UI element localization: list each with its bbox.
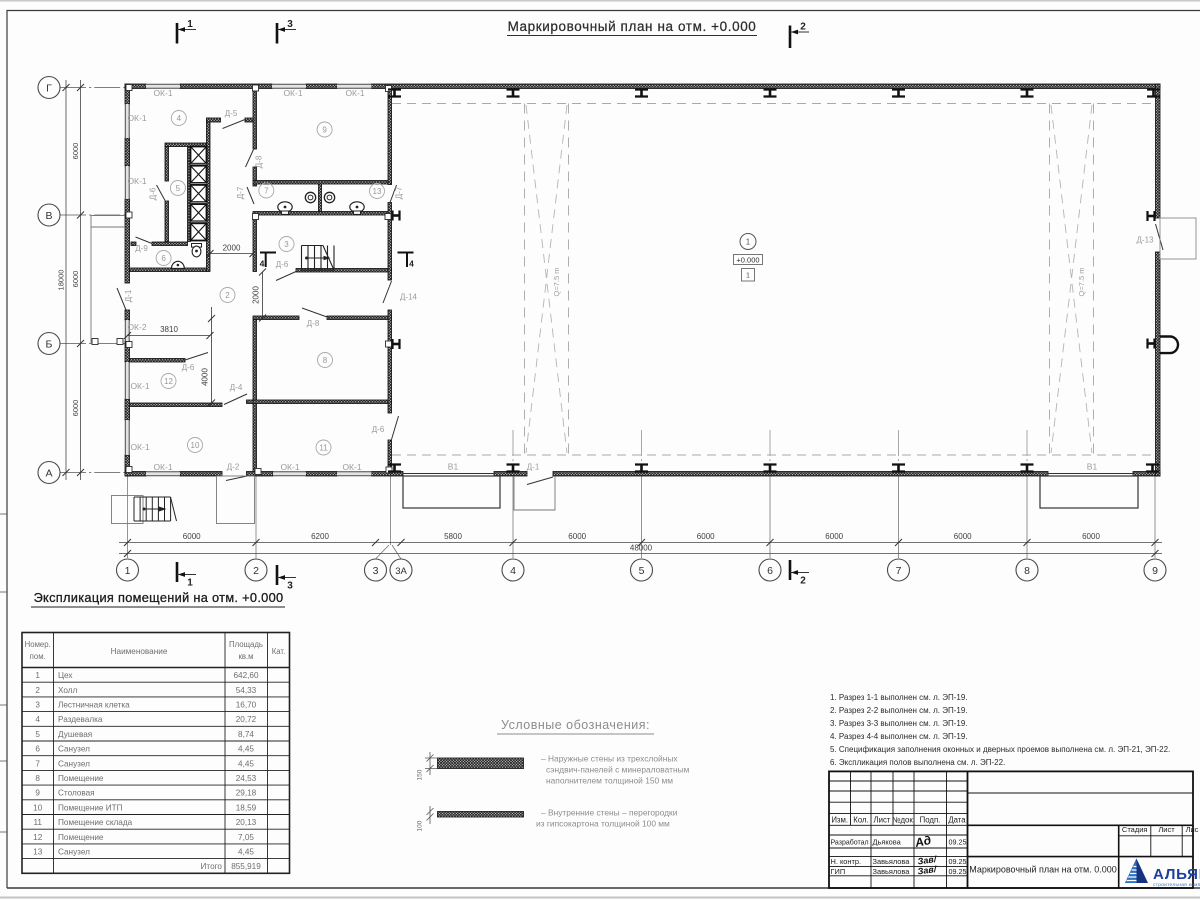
svg-text:6000: 6000	[183, 532, 201, 541]
svg-text:2: 2	[35, 686, 40, 695]
svg-text:4: 4	[35, 715, 40, 724]
svg-text:Раздевалка: Раздевалка	[58, 715, 103, 724]
svg-text:В1: В1	[448, 462, 459, 472]
svg-text:1: 1	[187, 19, 193, 30]
svg-text:2000: 2000	[252, 286, 261, 304]
svg-text:Стадия: Стадия	[1122, 825, 1148, 834]
svg-text:09.25: 09.25	[949, 857, 967, 866]
svg-text:7,05: 7,05	[238, 833, 254, 842]
svg-text:Санузел: Санузел	[58, 759, 90, 768]
svg-text:ОК-1: ОК-1	[342, 462, 361, 472]
svg-text:6000: 6000	[697, 532, 715, 541]
svg-text:2000: 2000	[223, 244, 241, 253]
svg-text:Кат.: Кат.	[272, 647, 286, 656]
svg-text:09.25: 09.25	[949, 838, 967, 847]
svg-text:4: 4	[409, 259, 414, 269]
svg-text:– Наружные стены из трехслойны: – Наружные стены из трехслойных	[541, 754, 678, 764]
svg-text:2: 2	[253, 565, 259, 577]
svg-text:10: 10	[33, 803, 43, 812]
svg-text:Разработал: Разработал	[831, 839, 869, 847]
svg-text:20,72: 20,72	[236, 715, 257, 724]
svg-text:3: 3	[373, 565, 379, 577]
svg-text:Г: Г	[46, 83, 52, 95]
svg-text:6000: 6000	[1082, 532, 1100, 541]
svg-text:Д-5: Д-5	[225, 109, 238, 118]
svg-text:3: 3	[287, 581, 293, 592]
svg-text:Санузел: Санузел	[58, 745, 90, 754]
svg-text:Д-6: Д-6	[276, 260, 289, 269]
svg-text:3: 3	[35, 701, 40, 710]
svg-text:8: 8	[1024, 565, 1030, 577]
svg-text:Маркировочный план на отм. 0.0: Маркировочный план на отм. 0.000	[969, 865, 1116, 875]
svg-text:Д-1: Д-1	[124, 289, 133, 302]
svg-text:855,919: 855,919	[231, 862, 261, 871]
svg-text:Дата: Дата	[948, 816, 966, 825]
svg-text:1: 1	[187, 578, 193, 589]
svg-text:Лис: Лис	[1186, 825, 1199, 834]
svg-text:1: 1	[125, 565, 131, 577]
svg-text:4: 4	[177, 114, 182, 123]
svg-text:ОК-1: ОК-1	[130, 381, 149, 391]
svg-text:Завьялова: Завьялова	[873, 867, 911, 876]
svg-text:ГИП: ГИП	[831, 867, 846, 876]
svg-text:Цех: Цех	[58, 671, 73, 680]
svg-text:3: 3	[287, 19, 293, 30]
svg-text:12: 12	[164, 377, 173, 386]
svg-text:Площадь: Площадь	[229, 640, 263, 649]
svg-text:4: 4	[510, 565, 516, 577]
svg-text:2: 2	[225, 291, 230, 300]
svg-text:наполнителем толщиной 150 мм: наполнителем толщиной 150 мм	[546, 776, 673, 786]
svg-text:4,45: 4,45	[238, 759, 254, 768]
svg-text:16,70: 16,70	[236, 701, 257, 710]
svg-text:Наименование: Наименование	[111, 647, 168, 656]
svg-text:7: 7	[264, 186, 269, 195]
svg-text:Д-14: Д-14	[400, 293, 418, 302]
svg-text:13: 13	[33, 848, 43, 857]
svg-text:6000: 6000	[825, 532, 843, 541]
svg-text:Д-6: Д-6	[372, 425, 385, 434]
svg-text:2. Разрез 2-2 выполнен см. л.: 2. Разрез 2-2 выполнен см. л. ЭП-19.	[830, 706, 968, 715]
svg-text:Душевая: Душевая	[58, 730, 92, 739]
svg-text:А: А	[45, 468, 52, 480]
svg-text:Лист: Лист	[1158, 825, 1175, 834]
svg-text:ОК-1: ОК-1	[345, 88, 364, 98]
svg-text:Д-6: Д-6	[182, 363, 195, 372]
svg-text:ОК-1: ОК-1	[283, 88, 302, 98]
svg-text:6: 6	[161, 254, 166, 263]
svg-text:Лестничная клетка: Лестничная клетка	[58, 701, 130, 710]
svg-text:7: 7	[35, 759, 40, 768]
svg-text:В: В	[45, 210, 52, 222]
svg-text:Д-6: Д-6	[149, 187, 158, 200]
svg-text:4,45: 4,45	[238, 848, 254, 857]
svg-text:ОК-1: ОК-1	[127, 113, 146, 123]
svg-text:8: 8	[35, 774, 40, 783]
svg-text:ОК-2: ОК-2	[127, 322, 146, 332]
svg-text:3: 3	[284, 240, 289, 249]
svg-text:ОК-1: ОК-1	[130, 442, 149, 452]
svg-text:1: 1	[746, 271, 750, 280]
svg-text:Б: Б	[46, 339, 53, 351]
svg-text:54,33: 54,33	[236, 686, 257, 695]
svg-text:8: 8	[323, 356, 328, 365]
svg-text:ОК-1: ОК-1	[280, 462, 299, 472]
svg-text:3810: 3810	[160, 325, 178, 334]
svg-text:6: 6	[35, 745, 40, 754]
svg-text:2: 2	[800, 576, 806, 587]
svg-text:Д-2: Д-2	[227, 463, 240, 472]
svg-text:Д-4: Д-4	[230, 383, 243, 392]
svg-text:+0.000: +0.000	[736, 256, 759, 265]
svg-text:4000: 4000	[201, 368, 210, 386]
svg-text:Холл: Холл	[58, 686, 78, 695]
svg-text:ОК-1: ОК-1	[127, 176, 146, 186]
svg-text:6. Экспликация полов выполнена: 6. Экспликация полов выполнена см. л. ЭП…	[830, 758, 1005, 767]
svg-text:5: 5	[35, 730, 40, 739]
svg-text:Итого: Итого	[201, 862, 223, 871]
svg-text:Столовая: Столовая	[58, 789, 95, 798]
svg-text:4. Разрез 4-4 выполнен см. л.: 4. Разрез 4-4 выполнен см. л. ЭП-19.	[830, 732, 968, 741]
svg-text:4: 4	[260, 259, 265, 269]
svg-text:Помещение: Помещение	[58, 833, 104, 842]
svg-text:Условные обозначения:: Условные обозначения:	[501, 718, 650, 732]
svg-text:Д-7: Д-7	[395, 186, 404, 199]
svg-text:Д-9: Д-9	[135, 244, 148, 253]
svg-text:100: 100	[417, 820, 424, 831]
svg-text:7: 7	[896, 565, 902, 577]
svg-text:6000: 6000	[71, 400, 80, 417]
svg-text:сэндвич-панелей с минераловатн: сэндвич-панелей с минераловатным	[546, 765, 690, 775]
svg-text:10: 10	[191, 441, 200, 450]
svg-text:20,13: 20,13	[236, 818, 257, 827]
svg-text:48000: 48000	[630, 544, 653, 553]
svg-text:6000: 6000	[71, 143, 80, 160]
svg-text:Кол.: Кол.	[853, 816, 868, 825]
svg-text:Д-8: Д-8	[307, 319, 320, 328]
svg-text:Маркировочный план на отм. +0.: Маркировочный план на отм. +0.000	[508, 19, 757, 34]
svg-text:9: 9	[35, 789, 40, 798]
svg-text:– Внутренние стены – перегород: – Внутренние стены – перегородки	[541, 808, 678, 818]
svg-text:1: 1	[746, 238, 751, 247]
svg-text:6000: 6000	[568, 532, 586, 541]
svg-text:из гипсокартона толщиной 100 м: из гипсокартона толщиной 100 мм	[536, 819, 670, 829]
svg-text:Д-7: Д-7	[236, 186, 245, 199]
svg-text:6000: 6000	[71, 271, 80, 288]
svg-text:11: 11	[319, 443, 328, 452]
svg-text:Дьякова: Дьякова	[873, 838, 902, 847]
svg-text:12: 12	[33, 833, 43, 842]
svg-text:Подп.: Подп.	[920, 816, 941, 825]
svg-text:АЛЬЯНС: АЛЬЯНС	[1153, 866, 1200, 883]
svg-text:5800: 5800	[444, 532, 462, 541]
svg-text:Санузел: Санузел	[58, 848, 90, 857]
svg-text:09.25: 09.25	[949, 867, 967, 876]
svg-text:6200: 6200	[311, 532, 329, 541]
svg-text:13: 13	[373, 187, 382, 196]
svg-text:В1: В1	[1087, 462, 1098, 472]
svg-text:11: 11	[33, 818, 42, 827]
svg-text:Экспликация помещений на отм.: Экспликация помещений на отм. +0.000	[34, 590, 284, 605]
svg-text:Завьялова: Завьялова	[873, 857, 911, 866]
svg-text:9: 9	[1152, 565, 1158, 577]
svg-text:Н. контр.: Н. контр.	[831, 857, 862, 866]
svg-text:5: 5	[176, 184, 181, 193]
svg-text:Помещение склада: Помещение склада	[58, 818, 133, 827]
svg-text:18,59: 18,59	[236, 803, 257, 812]
svg-text:6000: 6000	[954, 532, 972, 541]
svg-text:4,45: 4,45	[238, 745, 254, 754]
svg-text:ОК-1: ОК-1	[153, 462, 172, 472]
svg-text:Помещение: Помещение	[58, 774, 104, 783]
svg-text:строительная компания: строительная компания	[1153, 883, 1200, 888]
svg-text:Q=7.5 m: Q=7.5 m	[1077, 268, 1086, 297]
svg-text:5: 5	[639, 565, 645, 577]
svg-text:24,53: 24,53	[236, 774, 257, 783]
svg-text:Лист: Лист	[874, 816, 891, 825]
svg-text:150: 150	[417, 769, 424, 780]
svg-text:3А: 3А	[395, 566, 407, 577]
svg-text:№док.: №док.	[892, 816, 915, 825]
svg-text:9: 9	[322, 125, 327, 134]
svg-text:8,74: 8,74	[238, 730, 254, 739]
svg-text:1. Разрез 1-1 выполнен см. л.: 1. Разрез 1-1 выполнен см. л. ЭП-19.	[830, 693, 968, 702]
svg-text:1: 1	[35, 671, 40, 680]
svg-text:Помещение ИТП: Помещение ИТП	[58, 803, 123, 812]
svg-text:пом.: пом.	[30, 652, 46, 661]
svg-text:3. Разрез 3-3 выполнен см. л.: 3. Разрез 3-3 выполнен см. л. ЭП-19.	[830, 719, 968, 728]
svg-text:Д-8: Д-8	[255, 155, 264, 168]
svg-text:Д-13: Д-13	[1137, 236, 1155, 245]
svg-text:642,60: 642,60	[233, 671, 258, 680]
svg-text:6: 6	[767, 565, 773, 577]
svg-text:5. Спецификация заполнения око: 5. Спецификация заполнения оконных и две…	[830, 745, 1170, 754]
svg-text:Q=7.5 m: Q=7.5 m	[552, 268, 561, 297]
svg-text:Д-1: Д-1	[527, 463, 540, 472]
svg-text:Изм.: Изм.	[831, 816, 848, 825]
svg-text:ОК-1: ОК-1	[153, 88, 172, 98]
svg-text:18000: 18000	[57, 270, 66, 291]
svg-text:2: 2	[800, 22, 806, 33]
svg-text:29,18: 29,18	[236, 789, 257, 798]
svg-text:Номер.: Номер.	[25, 640, 51, 649]
svg-text:кв.м: кв.м	[238, 652, 253, 661]
